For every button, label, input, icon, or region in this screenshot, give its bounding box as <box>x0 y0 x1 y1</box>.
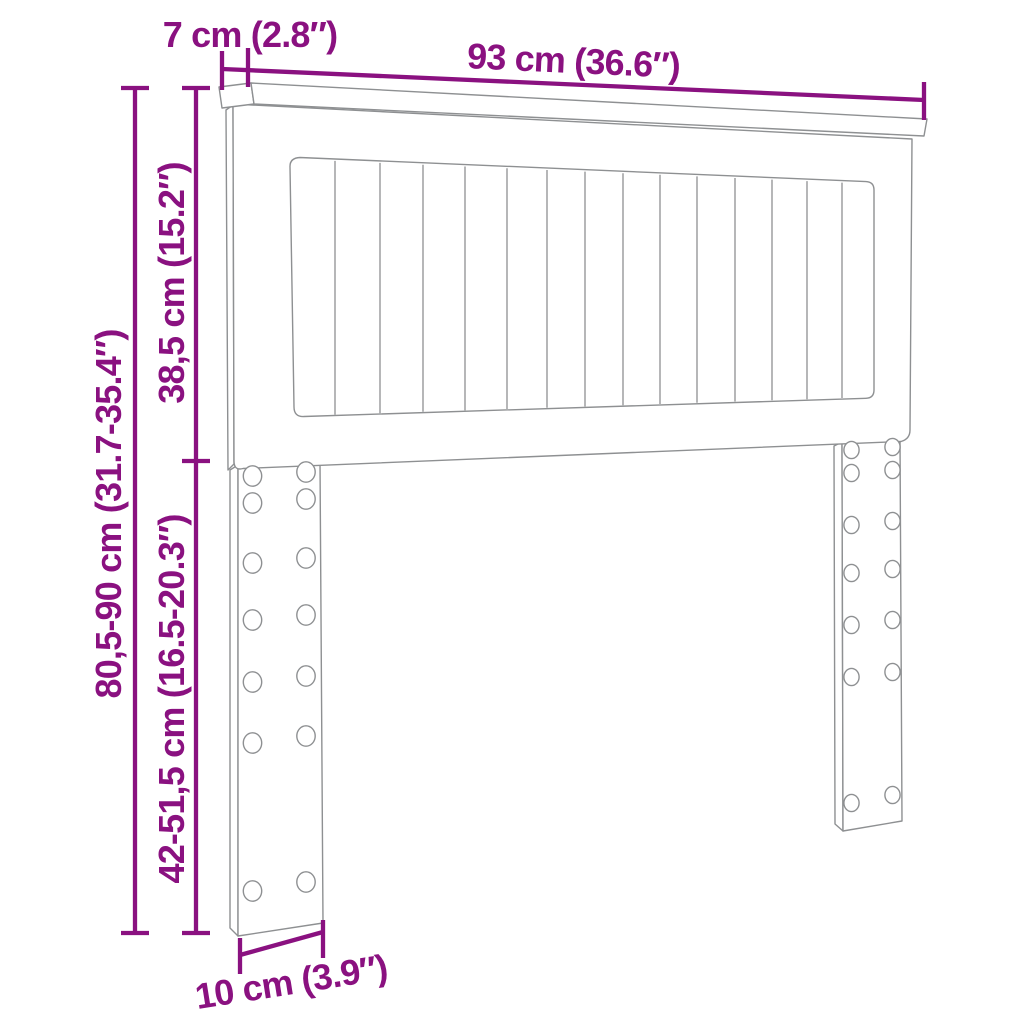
mounting-hole <box>844 441 859 458</box>
mounting-hole <box>885 786 900 803</box>
width-label: 93 cm (36.6″) <box>466 35 681 86</box>
total-height-label: 80,5-90 cm (31.7-35.4″) <box>88 329 129 698</box>
mounting-hole <box>243 610 261 630</box>
mounting-hole <box>885 611 900 628</box>
mounting-hole <box>844 794 859 811</box>
mounting-hole <box>885 560 900 577</box>
upper-height-label: 38,5 cm (15.2″) <box>151 162 192 403</box>
headboard-dimension-diagram: 7 cm (2.8″) 93 cm (36.6″) 38,5 cm (15.2″… <box>0 0 1024 1024</box>
mounting-hole <box>844 464 859 481</box>
mounting-hole <box>844 616 859 633</box>
mounting-hole <box>297 548 315 568</box>
left-leg-front-face <box>238 461 323 936</box>
mounting-hole <box>243 553 261 573</box>
mounting-hole <box>297 726 315 746</box>
mounting-hole <box>844 668 859 685</box>
mounting-hole <box>243 466 261 486</box>
leg-height-label: 42-51,5 cm (16.5-20.3″) <box>151 514 192 883</box>
cap-depth-label: 7 cm (2.8″) <box>163 14 338 55</box>
left-leg-side-face <box>230 465 238 936</box>
leg-width-label: 10 cm (3.9″) <box>192 946 390 1017</box>
mounting-hole <box>844 564 859 581</box>
mounting-hole <box>297 462 315 482</box>
mounting-hole <box>885 512 900 529</box>
right-leg-front-face <box>842 439 902 831</box>
mounting-hole <box>243 733 261 753</box>
mounting-hole <box>844 516 859 533</box>
mounting-hole <box>885 438 900 455</box>
headboard-drawing <box>219 83 927 936</box>
mounting-hole <box>885 461 900 478</box>
headboard-panel <box>226 104 912 470</box>
right-leg <box>834 439 902 831</box>
mounting-hole <box>297 605 315 625</box>
mounting-hole <box>297 872 315 892</box>
leg-width-line <box>240 932 323 955</box>
mounting-hole <box>297 489 315 509</box>
left-leg <box>230 461 323 936</box>
mounting-hole <box>243 672 261 692</box>
slat-panel <box>290 158 874 417</box>
mounting-hole <box>243 881 261 901</box>
mounting-hole <box>297 666 315 686</box>
mounting-hole <box>243 493 261 513</box>
mounting-hole <box>885 663 900 680</box>
